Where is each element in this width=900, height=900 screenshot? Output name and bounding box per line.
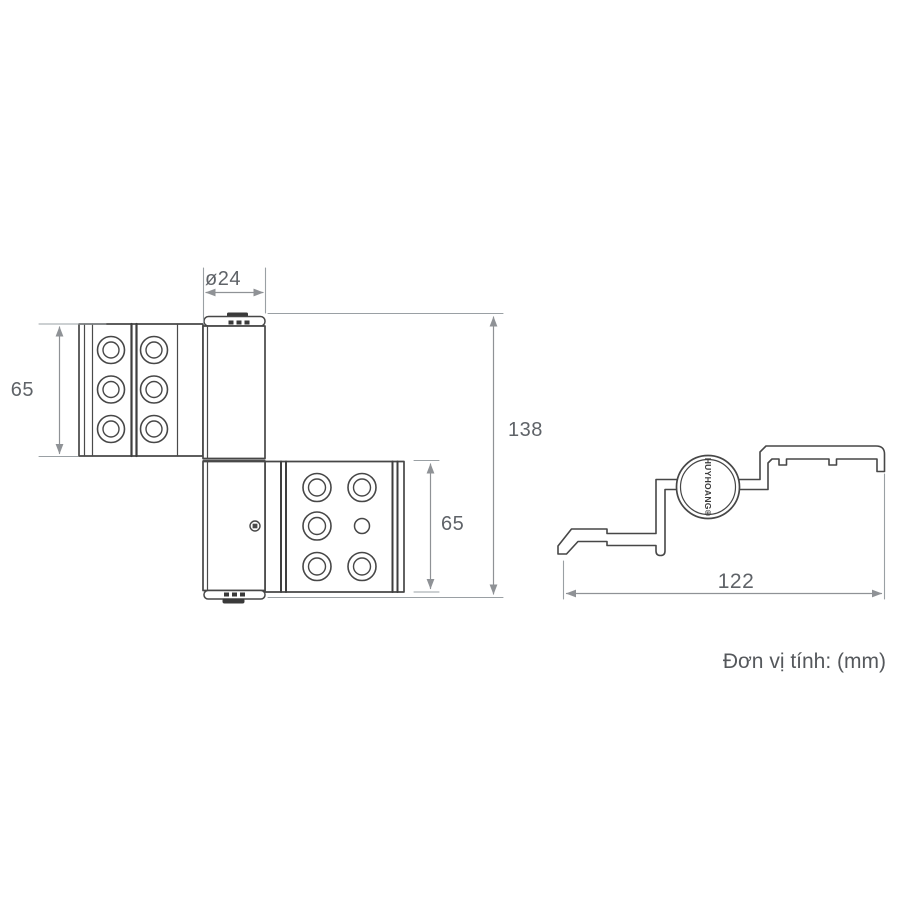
dim-tick-lines <box>414 461 439 593</box>
dim-label-lower-leaf: 65 <box>441 513 464 535</box>
dim-label-profile-width: 122 <box>718 570 755 593</box>
lower-leaf <box>265 462 404 593</box>
upper-leaf <box>79 324 203 456</box>
unit-note: Đơn vị tính: (mm) <box>723 650 886 673</box>
dim-lower-leaf-height: 65 <box>414 461 464 593</box>
hinge-front-view: ø24 65 138 65 <box>11 268 543 604</box>
hinge-profile-section-view: HUYHOANG® 122 <box>558 446 885 599</box>
barrel-upper-body <box>203 326 265 459</box>
barrel-top-cap-detail <box>229 321 250 325</box>
dim-label-upper-leaf: 65 <box>11 379 34 401</box>
dim-label-diameter: ø24 <box>205 268 241 290</box>
brand-badge: HUYHOANG® <box>677 456 740 519</box>
barrel-bottom-cap-detail <box>224 593 245 597</box>
technical-drawing-canvas: ø24 65 138 65 <box>0 0 900 900</box>
barrel-bottom-pin <box>223 599 245 604</box>
dim-label-overall-height: 138 <box>508 419 543 441</box>
brand-mark-text: HUYHOANG® <box>703 458 713 517</box>
barrel-top-cap <box>204 317 265 327</box>
hinge-technical-drawing: ø24 65 138 65 <box>0 0 900 900</box>
hinge-barrel <box>203 313 265 604</box>
